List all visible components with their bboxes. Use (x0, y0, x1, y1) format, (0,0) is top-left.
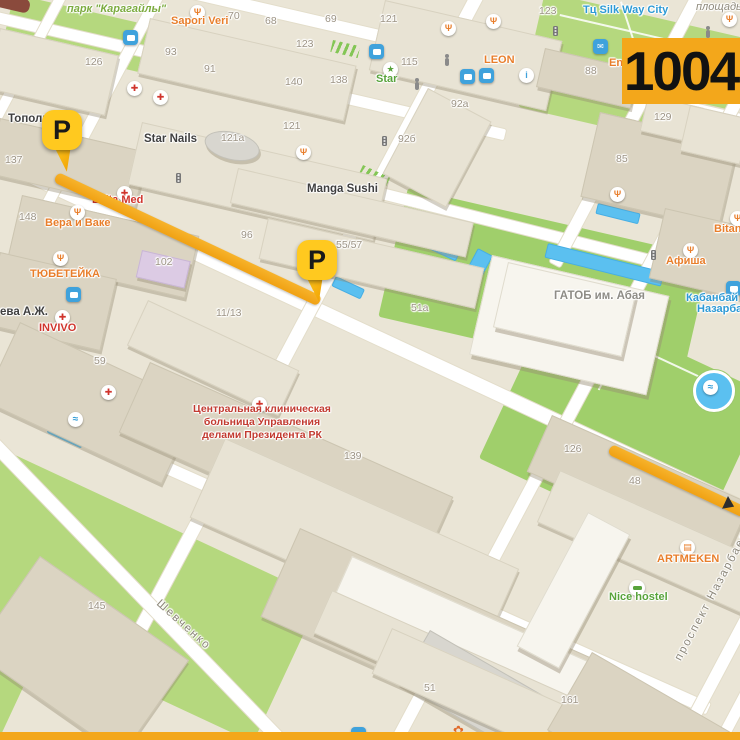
poi-label[interactable]: Star Nails (144, 133, 197, 145)
bus-stop-icon[interactable] (479, 68, 494, 83)
house-number: 55/57 (336, 239, 362, 251)
poi-label[interactable]: ева А.Ж. (0, 306, 48, 318)
house-number: 148 (19, 211, 37, 223)
house-number: 93 (165, 46, 177, 58)
house-number: 137 (5, 154, 23, 166)
map-canvas[interactable]: Ψ Ψ Ψ Ψ Ψ Ψ Ψ Ψ Ψ Ψ ✚ ✚ ✚ ✚ ✚ ✚ ✉ i ★ ▤ … (0, 0, 740, 740)
poi-label[interactable]: LEON (484, 54, 515, 66)
parking-marker[interactable]: P (297, 240, 337, 280)
traffic-light-icon (651, 250, 656, 260)
house-number: 123 (539, 5, 557, 17)
house-number: 92б (398, 133, 416, 145)
house-number: 11/13 (216, 307, 242, 319)
poi-label[interactable]: ARTMEKEN (657, 553, 719, 565)
house-number: 69 (325, 13, 337, 25)
bus-stop-icon[interactable] (369, 44, 384, 59)
parking-letter: P (53, 115, 71, 146)
monument-icon (445, 58, 449, 66)
poi-label[interactable]: Nice hostel (609, 591, 668, 603)
house-number: 126 (85, 56, 103, 68)
medical-icon[interactable]: ✚ (127, 81, 142, 96)
house-number: 139 (344, 450, 362, 462)
poi-label[interactable]: Manga Sushi (307, 183, 378, 195)
poi-label[interactable]: Sapori Veri (171, 15, 228, 27)
parking-letter: P (308, 245, 326, 276)
poi-label[interactable]: En (609, 57, 623, 69)
post-icon[interactable]: ✉ (593, 39, 608, 54)
hospital-label[interactable]: Центральная клиническая больница Управле… (192, 403, 332, 442)
poi-label[interactable]: INVIVO (39, 322, 76, 334)
poi-label[interactable]: ГАТОБ им. Абая (554, 290, 645, 302)
house-number: 123 (296, 38, 314, 50)
restaurant-icon[interactable]: Ψ (441, 21, 456, 36)
park-name-label: парк "Карагайлы" (67, 3, 166, 15)
bus-stop-icon[interactable] (66, 287, 81, 302)
house-number: 121 (283, 120, 301, 132)
bottom-accent-strip (0, 732, 740, 740)
poi-label[interactable]: Bitang (714, 223, 740, 235)
route-number-badge: 1004 (622, 38, 740, 104)
house-number: 140 (285, 76, 303, 88)
building (137, 18, 356, 121)
fountain-icon[interactable]: ≈ (68, 412, 83, 427)
house-number: 126 (564, 443, 582, 455)
poi-label[interactable]: Афиша (666, 255, 706, 267)
poi-label[interactable]: Star (376, 73, 397, 85)
restaurant-icon[interactable]: Ψ (53, 251, 68, 266)
monument-icon (415, 82, 419, 90)
bus-stop-icon[interactable] (460, 69, 475, 84)
fountain-icon[interactable]: ≈ (703, 380, 718, 395)
bus-stop-label[interactable]: Назарба (697, 303, 740, 315)
traffic-light-icon (382, 136, 387, 146)
medical-icon[interactable]: ✚ (101, 385, 116, 400)
poi-label[interactable]: ТЮБЕТЕЙКА (30, 268, 100, 280)
poi-label[interactable]: Тц Silk Way City (583, 4, 668, 16)
house-number: 138 (330, 74, 348, 86)
restaurant-icon[interactable]: Ψ (722, 12, 737, 27)
house-number: 59 (94, 355, 106, 367)
house-number: 91 (204, 63, 216, 75)
traffic-light-icon (553, 26, 558, 36)
house-number: 51а (411, 302, 429, 314)
house-number: 88 (585, 65, 597, 77)
locality-label: площадь (696, 1, 740, 13)
house-number: 48 (629, 475, 641, 487)
house-number: 121а (221, 132, 244, 144)
house-number: 129 (654, 111, 672, 123)
house-number: 121 (380, 13, 398, 25)
house-number: 85 (616, 153, 628, 165)
house-number: 96 (241, 229, 253, 241)
bus-stop-icon[interactable] (123, 30, 138, 45)
info-poi-icon[interactable]: i (519, 68, 534, 83)
house-number: 115 (401, 56, 418, 68)
house-number: 51 (424, 682, 436, 694)
medical-icon[interactable]: ✚ (153, 90, 168, 105)
crosswalk (330, 40, 360, 58)
monument-icon (706, 30, 710, 38)
restaurant-icon[interactable]: Ψ (610, 187, 625, 202)
poi-label[interactable]: Вера и Ваке (45, 217, 110, 229)
traffic-light-icon (176, 173, 181, 183)
route-number: 1004 (624, 39, 738, 103)
parking-marker[interactable]: P (42, 110, 82, 150)
house-number: 145 (88, 600, 106, 612)
house-number: 92а (451, 98, 469, 110)
restaurant-icon[interactable]: Ψ (486, 14, 501, 29)
restaurant-icon[interactable]: Ψ (296, 145, 311, 160)
house-number: 70 (228, 10, 240, 22)
house-number: 161 (561, 694, 579, 706)
house-number: 68 (265, 15, 277, 27)
house-number: 102 (155, 256, 173, 268)
